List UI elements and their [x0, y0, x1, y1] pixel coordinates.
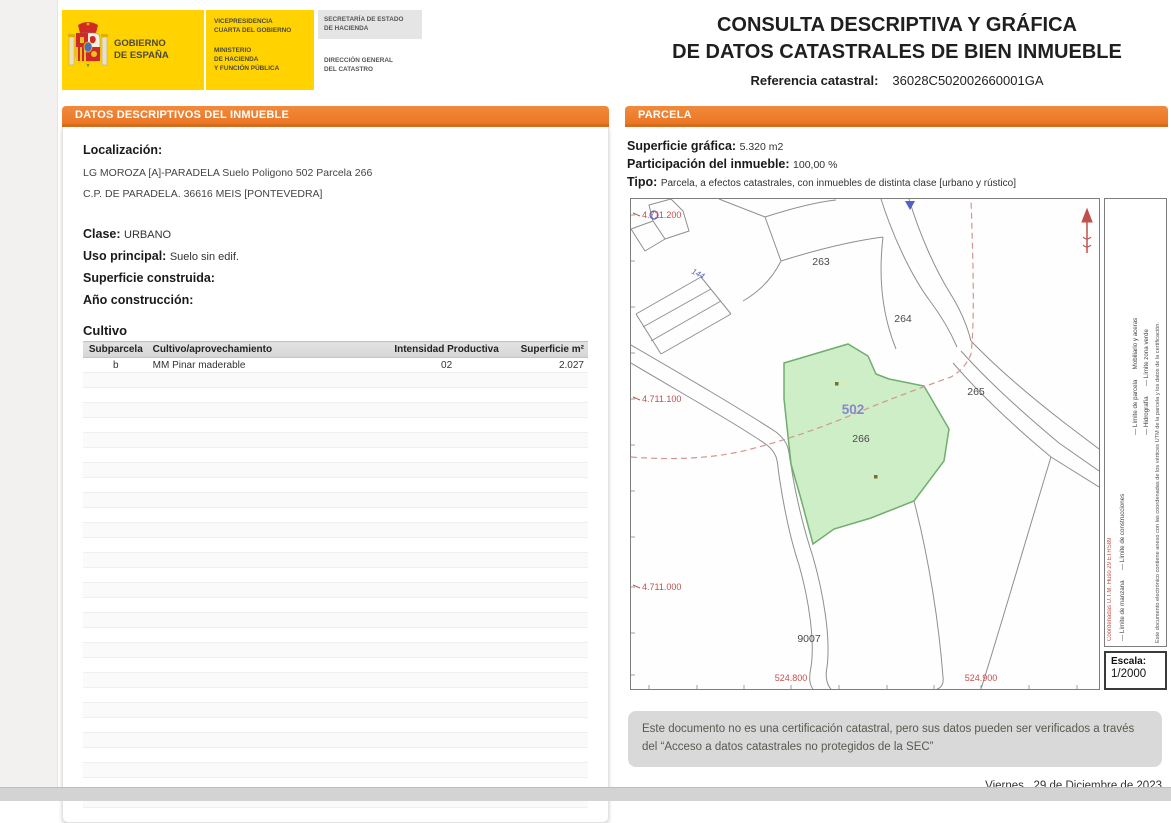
table-empty-row: [83, 493, 588, 508]
left-panel-card: Localización: LG MOROZA [A]-PARADELA Sue…: [62, 127, 609, 823]
descriptive-data-panel: DATOS DESCRIPTIVOS DEL INMUEBLE Localiza…: [62, 106, 609, 823]
parcel-label-266: 266: [852, 433, 870, 445]
legend-manzana: — Límite de manzana — Límite de construc…: [1119, 349, 1126, 641]
uso-principal-row: Uso principal: Suelo sin edif.: [83, 249, 588, 263]
clase-value: URBANO: [124, 229, 171, 241]
scale-value: 1/2000: [1111, 668, 1160, 680]
table-empty-row: [83, 568, 588, 583]
header-subparcela: Subparcela: [83, 342, 149, 358]
coord-y-top: 4.711.200: [642, 210, 681, 220]
legend-annex-note: Este documento electrónico contiene anex…: [1155, 203, 1161, 643]
disclaimer-box: Este documento no es una certificación c…: [628, 711, 1162, 767]
parcel-label-9007: 9007: [797, 633, 821, 645]
table-empty-row: [83, 433, 588, 448]
legend-crs-note: Coordenadas U.T.M. Huso 29 ETRS89: [1107, 379, 1113, 641]
parcela-panel: PARCELA Superficie gráfica: 5.320 m2 Par…: [625, 106, 1168, 792]
polygon-label-502: 502: [842, 402, 865, 417]
cultivo-table-header-row: Subparcela Cultivo/aprovechamiento Inten…: [83, 342, 588, 358]
header-cultivo: Cultivo/aprovechamiento: [149, 342, 381, 358]
table-empty-row: [83, 583, 588, 598]
cadastral-reference: Referencia catastral:36028C502002660001G…: [630, 73, 1164, 88]
coord-x-right: 524.900: [965, 673, 998, 683]
table-empty-row: [83, 613, 588, 628]
flow-arrow-icon: [905, 201, 915, 210]
table-empty-row: [83, 748, 588, 763]
table-empty-row: [83, 598, 588, 613]
table-empty-row: [83, 553, 588, 568]
direccion-general-catastro-label: DIRECCIÓN GENERAL DEL CATASTRO: [318, 51, 422, 80]
legend-parcela: — Límite de parcela Mobiliario y aceras: [1132, 205, 1139, 435]
right-panel-header: PARCELA: [625, 106, 1168, 127]
table-empty-row: [83, 538, 588, 553]
participacion-value: 100,00 %: [793, 159, 837, 171]
ministry-box: VICEPRESIDENCIA CUARTA DEL GOBIERNO MINI…: [206, 10, 314, 90]
legend-hidrografia: — Hidrografía — Límite zona verde: [1143, 205, 1150, 435]
table-empty-row: [83, 658, 588, 673]
north-arrow-icon: [1082, 209, 1092, 253]
uso-value: Suelo sin edif.: [170, 251, 239, 263]
cultivo-table-body: b MM Pinar maderable 02 2.027: [83, 358, 588, 808]
tipo-row: Tipo: Parcela, a efectos catastrales, co…: [627, 175, 1166, 189]
map-legend: Coordenadas U.T.M. Huso 29 ETRS89 — Lími…: [1104, 198, 1167, 647]
clase-row: Clase: URBANO: [83, 227, 588, 241]
parcel-label-264: 264: [894, 313, 912, 325]
table-empty-row: [83, 718, 588, 733]
table-empty-row: [83, 448, 588, 463]
title-line-2: DE DATOS CATASTRALES DE BIEN INMUEBLE: [630, 39, 1164, 66]
reference-value: 36028C502002660001GA: [892, 73, 1043, 88]
table-empty-row: [83, 703, 588, 718]
cadastral-map: 144 263 264 265 266 9007 502: [630, 198, 1168, 690]
gobierno-de-espana-label: GOBIERNO DE ESPAÑA: [114, 38, 169, 62]
table-empty-row: [83, 763, 588, 778]
table-empty-row: [83, 463, 588, 478]
scale-label: Escala:: [1111, 656, 1160, 667]
table-empty-row: [83, 643, 588, 658]
header-superficie: Superficie m²: [512, 342, 588, 358]
table-empty-row: [83, 508, 588, 523]
ministerio-label: MINISTERIO: [214, 46, 306, 55]
superficie-grafica-value: 5.320 m2: [740, 141, 784, 153]
vicepresidencia-label: VICEPRESIDENCIA: [214, 17, 306, 26]
page-edge-left: [0, 0, 58, 800]
coord-y-mid: 4.711.100: [642, 394, 681, 404]
coord-x-left: 524.800: [775, 673, 808, 683]
superficie-construida-row: Superficie construida:: [83, 271, 588, 285]
table-empty-row: [83, 388, 588, 403]
map-canvas[interactable]: 144 263 264 265 266 9007 502: [630, 198, 1100, 690]
localizacion-line-2: C.P. DE PARADELA. 36616 MEIS [PONTEVEDRA…: [83, 184, 588, 205]
cultivo-table: Subparcela Cultivo/aprovechamiento Inten…: [83, 341, 588, 808]
table-empty-row: [83, 628, 588, 643]
table-empty-row: [83, 673, 588, 688]
cultivo-title: Cultivo: [83, 323, 588, 338]
reference-label: Referencia catastral:: [751, 73, 879, 88]
header-intensidad: Intensidad Productiva: [381, 342, 512, 358]
scale-box: Escala: 1/2000: [1104, 651, 1167, 690]
localizacion-label: Localización:: [83, 143, 588, 157]
table-row: b MM Pinar maderable 02 2.027: [83, 358, 588, 373]
table-empty-row: [83, 373, 588, 388]
logo-yellow-box: GOBIERNO DE ESPAÑA: [62, 10, 204, 90]
localizacion-line-1: LG MOROZA [A]-PARADELA Suelo Poligono 50…: [83, 163, 588, 184]
secretaria-estado-label: SECRETARÍA DE ESTADO DE HACIENDA: [318, 10, 422, 39]
spain-coat-of-arms-icon: [68, 21, 108, 80]
document-title: CONSULTA DESCRIPTIVA Y GRÁFICA DE DATOS …: [630, 12, 1164, 88]
left-panel-header: DATOS DESCRIPTIVOS DEL INMUEBLE: [62, 106, 609, 127]
coord-y-bot: 4.711.000: [642, 582, 681, 592]
road-number-label: 144: [690, 267, 706, 281]
table-empty-row: [83, 403, 588, 418]
parcel-label-263: 263: [812, 256, 830, 268]
participacion-row: Participación del inmueble: 100,00 %: [627, 157, 1166, 171]
anio-construccion-row: Año construcción:: [83, 293, 588, 307]
table-empty-row: [83, 418, 588, 433]
cell-subparcela: b: [83, 358, 149, 373]
parcel-label-265: 265: [967, 386, 985, 398]
cell-cultivo: MM Pinar maderable: [149, 358, 381, 373]
map-svg: 144 263 264 265 266 9007 502: [631, 199, 1099, 689]
table-empty-row: [83, 478, 588, 493]
tipo-value: Parcela, a efectos catastrales, con inmu…: [661, 178, 1016, 189]
title-line-1: CONSULTA DESCRIPTIVA Y GRÁFICA: [630, 12, 1164, 39]
page-edge-bottom: [0, 787, 1171, 801]
cell-intensidad: 02: [381, 358, 512, 373]
government-logo: GOBIERNO DE ESPAÑA VICEPRESIDENCIA CUART…: [62, 10, 422, 90]
table-empty-row: [83, 688, 588, 703]
cell-superficie: 2.027: [512, 358, 588, 373]
table-empty-row: [83, 523, 588, 538]
superficie-grafica-row: Superficie gráfica: 5.320 m2: [627, 139, 1166, 153]
table-empty-row: [83, 733, 588, 748]
